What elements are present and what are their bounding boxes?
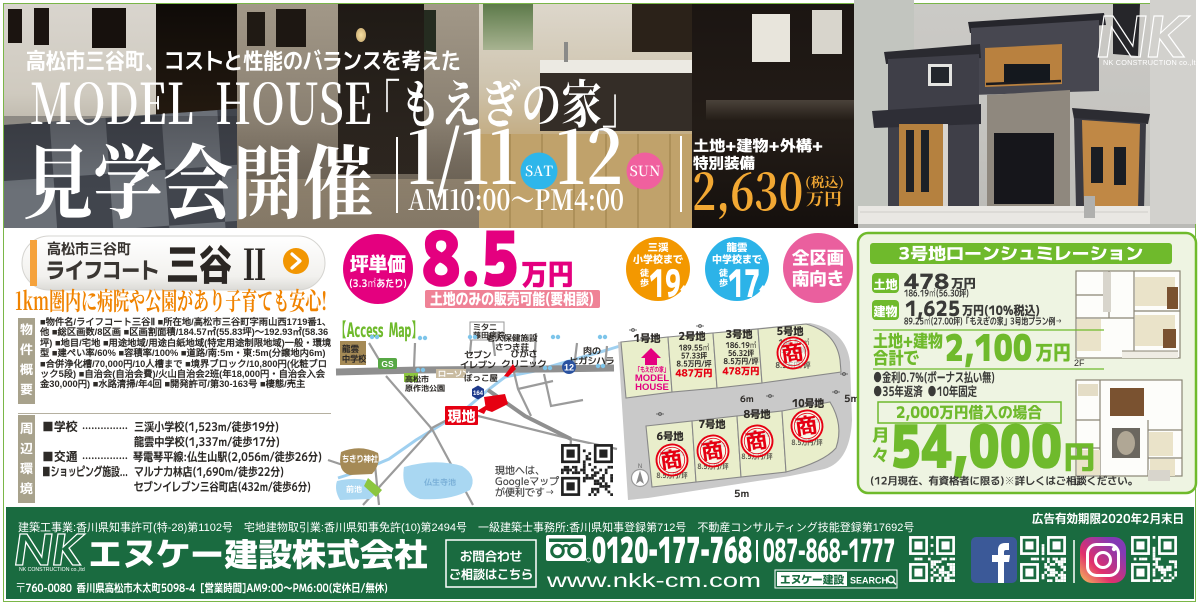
- svg-text:SEARCH: SEARCH: [850, 576, 888, 586]
- svg-text:164: 164: [473, 391, 484, 397]
- svg-text:2F: 2F: [1074, 358, 1085, 368]
- svg-text:NK CONSTRUCTION co.,ltd: NK CONSTRUCTION co.,ltd: [1103, 58, 1200, 67]
- svg-text:N: N: [638, 464, 642, 470]
- svg-text:www.nkk-cm.com: www.nkk-cm.com: [546, 571, 761, 592]
- svg-text:12: 12: [564, 363, 574, 373]
- svg-text:GS: GS: [381, 359, 394, 369]
- svg-text:HOUSE: HOUSE: [635, 382, 669, 393]
- svg-text:NK CONSTRUCTION co.,ltd: NK CONSTRUCTION co.,ltd: [19, 567, 85, 573]
